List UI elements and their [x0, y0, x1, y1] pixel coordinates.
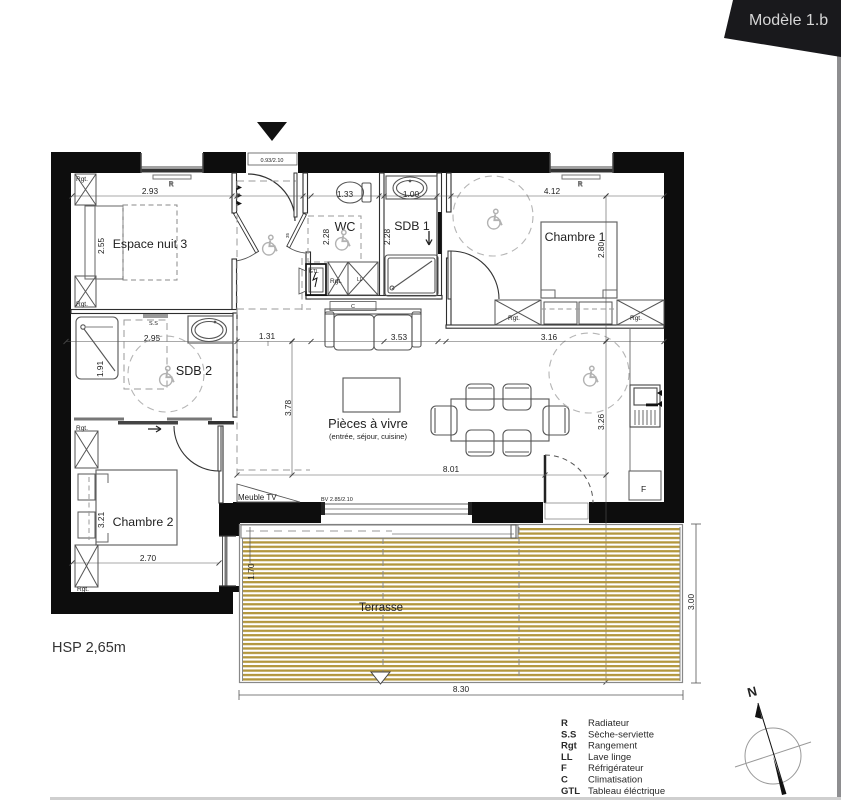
svg-text:1.70: 1.70: [246, 563, 256, 580]
svg-text:1.31: 1.31: [259, 331, 276, 341]
svg-text:HSP 2,65m: HSP 2,65m: [52, 640, 126, 656]
svg-text:S.S: S.S: [149, 321, 158, 327]
svg-text:Sèche-serviette: Sèche-serviette: [588, 729, 654, 740]
svg-text:2.93: 2.93: [142, 186, 159, 196]
svg-text:3.16: 3.16: [541, 332, 558, 342]
svg-text:3.53: 3.53: [391, 332, 408, 342]
svg-text:3.00: 3.00: [686, 593, 696, 610]
svg-text:Chambre 2: Chambre 2: [113, 515, 174, 529]
svg-text:Rangement: Rangement: [588, 741, 637, 752]
svg-text:SDB 1: SDB 1: [394, 219, 430, 233]
svg-text:Radiateur: Radiateur: [588, 718, 629, 729]
svg-text:2.80: 2.80: [596, 241, 606, 258]
svg-text:Terrasse: Terrasse: [359, 602, 403, 614]
svg-text:Rgt.: Rgt.: [330, 278, 342, 285]
svg-text:8.01: 8.01: [443, 464, 460, 474]
svg-text:GTL: GTL: [561, 786, 580, 797]
svg-text:LL: LL: [561, 752, 573, 763]
svg-text:Espace nuit 3: Espace nuit 3: [113, 237, 188, 251]
svg-text:C: C: [561, 775, 568, 786]
svg-text:Rgt.: Rgt.: [77, 586, 89, 593]
svg-text:F: F: [641, 484, 646, 494]
svg-text:1.33: 1.33: [337, 189, 354, 199]
svg-text:WC: WC: [335, 220, 356, 234]
svg-text:2.70: 2.70: [140, 553, 157, 563]
svg-text:(entrée, séjour, cuisine): (entrée, séjour, cuisine): [329, 432, 407, 441]
svg-text:Tableau éléctrique: Tableau éléctrique: [588, 786, 665, 797]
svg-text:R: R: [169, 182, 174, 188]
svg-text:Réfrigérateur: Réfrigérateur: [588, 763, 643, 774]
svg-text:Rgt.: Rgt.: [508, 315, 520, 322]
svg-text:35: 35: [285, 232, 290, 238]
svg-text:3.26: 3.26: [596, 413, 606, 430]
svg-text:1.91: 1.91: [95, 360, 105, 377]
svg-text:R: R: [578, 182, 583, 188]
svg-text:Modèle 1.b: Modèle 1.b: [749, 12, 828, 29]
svg-text:SDB 2: SDB 2: [176, 364, 212, 378]
svg-text:4.12: 4.12: [544, 186, 561, 196]
svg-text:Pièces à vivre: Pièces à vivre: [328, 416, 408, 431]
svg-text:Meuble TV: Meuble TV: [238, 493, 277, 502]
svg-text:LL: LL: [357, 277, 363, 283]
svg-text:8.30: 8.30: [453, 684, 470, 694]
svg-text:3.21: 3.21: [96, 511, 106, 528]
svg-text:Rgt.: Rgt.: [630, 315, 642, 322]
svg-text:1.00: 1.00: [403, 189, 420, 199]
svg-text:2.28: 2.28: [321, 228, 331, 245]
svg-text:Lave linge: Lave linge: [588, 752, 631, 763]
svg-text:Climatisation: Climatisation: [588, 775, 642, 786]
svg-text:R: R: [561, 718, 568, 729]
svg-text:S.S: S.S: [561, 729, 576, 740]
svg-text:0.93/2.10: 0.93/2.10: [261, 158, 284, 164]
svg-text:Rgt.: Rgt.: [76, 425, 88, 432]
svg-text:F: F: [561, 763, 567, 774]
svg-text:2.28: 2.28: [382, 228, 392, 245]
svg-text:3.78: 3.78: [283, 399, 293, 416]
svg-text:Rgt: Rgt: [561, 741, 578, 752]
svg-text:GTL: GTL: [309, 269, 319, 275]
svg-text:2.55: 2.55: [96, 237, 106, 254]
svg-text:Rgt.: Rgt.: [76, 301, 88, 308]
svg-text:Rgt.: Rgt.: [76, 176, 88, 183]
